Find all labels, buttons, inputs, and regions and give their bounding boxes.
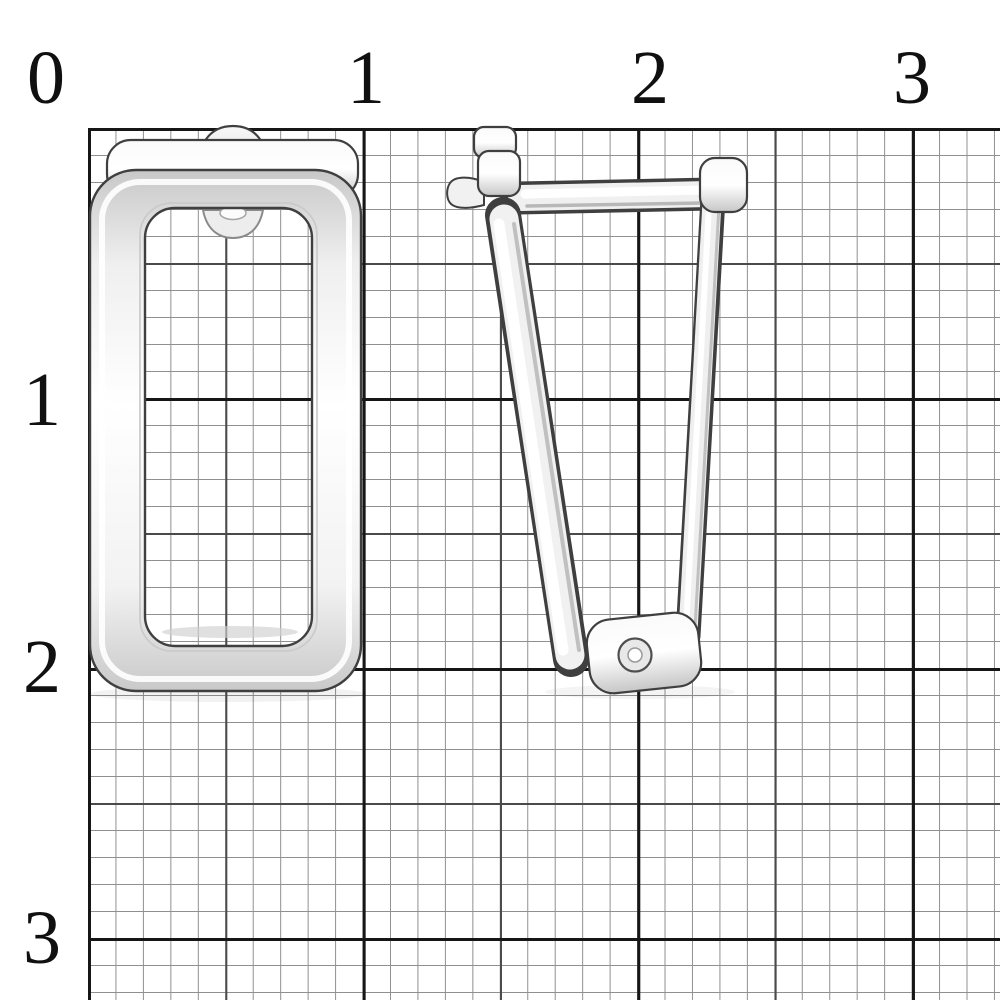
ruler-top-label-2: 2	[631, 40, 669, 116]
ruler-top-label-1: 1	[347, 40, 385, 116]
front-hook-body	[504, 219, 570, 655]
ruler-left-label-1: 1	[23, 362, 61, 438]
ruler-top-label-0: 0	[27, 40, 65, 116]
window-bottom-reflection	[162, 626, 298, 638]
top-corner-knob	[700, 158, 747, 212]
earring-rectangular-frame	[90, 170, 361, 691]
hinge-rivet-center	[628, 648, 642, 662]
product-photo-canvas: 0 1 2 3 1 2 3	[0, 0, 1000, 1000]
frame-inner-edge-shade	[140, 203, 317, 651]
earring-front-view	[80, 110, 380, 710]
top-bar-highlight	[525, 190, 705, 194]
hinge-joint-block	[478, 151, 520, 196]
ruler-top-label-3: 3	[893, 40, 931, 116]
ruler-left-label-2: 2	[23, 629, 61, 705]
earring-side-view	[435, 110, 765, 710]
ruler-left-label-3: 3	[23, 900, 61, 976]
